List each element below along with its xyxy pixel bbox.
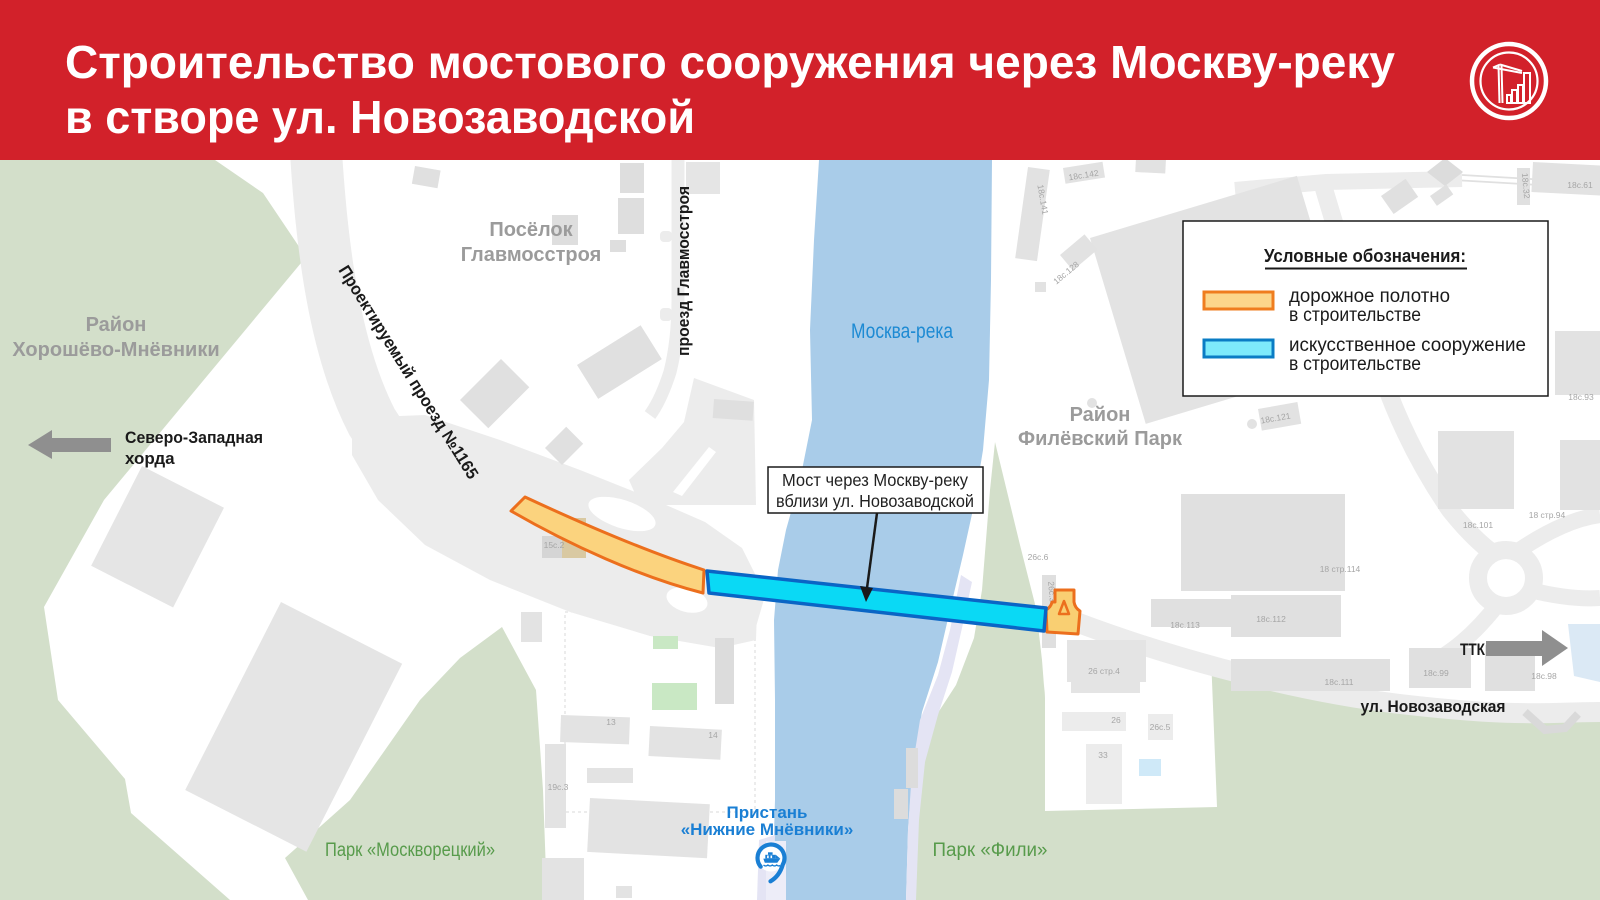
svg-text:Северо-Западная: Северо-Западная (125, 428, 263, 447)
svg-text:в строительстве: в строительстве (1289, 354, 1421, 375)
svg-text:19с.3: 19с.3 (548, 782, 569, 792)
svg-text:Строительство мостового сооруж: Строительство мостового сооружения через… (65, 36, 1395, 88)
svg-text:Хорошёво-Мнёвники: Хорошёво-Мнёвники (12, 339, 219, 361)
svg-text:Район: Район (86, 314, 147, 336)
svg-text:18с.61: 18с.61 (1567, 180, 1593, 190)
svg-text:Москва-река: Москва-река (851, 320, 953, 343)
svg-text:18 стр.114: 18 стр.114 (1320, 564, 1361, 574)
svg-text:Филёвский Парк: Филёвский Парк (1018, 428, 1183, 450)
svg-text:Парк «Фили»: Парк «Фили» (933, 840, 1048, 861)
svg-text:18с.99: 18с.99 (1423, 668, 1449, 678)
svg-text:проезд Главмосстроя: проезд Главмосстроя (674, 186, 693, 356)
svg-text:в створе ул. Новозаводской: в створе ул. Новозаводской (65, 91, 695, 143)
svg-text:18с.113: 18с.113 (1170, 620, 1200, 630)
svg-text:Главмосстроя: Главмосстроя (461, 244, 602, 266)
svg-text:Условные обозначения:: Условные обозначения: (1264, 246, 1466, 266)
svg-text:26с.5: 26с.5 (1150, 722, 1171, 732)
svg-text:18 стр.94: 18 стр.94 (1529, 510, 1566, 520)
svg-text:26с.6: 26с.6 (1028, 552, 1049, 562)
svg-text:18с.98: 18с.98 (1531, 671, 1557, 681)
svg-text:дорожное полотно: дорожное полотно (1289, 286, 1450, 307)
svg-text:26: 26 (1111, 715, 1121, 725)
svg-text:Район: Район (1070, 404, 1131, 426)
svg-text:13: 13 (606, 717, 616, 727)
svg-text:14: 14 (708, 730, 718, 740)
svg-text:ТТК: ТТК (1460, 640, 1485, 659)
svg-text:Посёлок: Посёлок (489, 219, 573, 241)
svg-text:18с.112: 18с.112 (1256, 614, 1286, 624)
svg-text:33: 33 (1098, 750, 1108, 760)
svg-text:18с.101: 18с.101 (1463, 520, 1494, 530)
svg-text:26 стр.4: 26 стр.4 (1088, 666, 1120, 676)
svg-text:вблизи ул. Новозаводской: вблизи ул. Новозаводской (776, 491, 974, 511)
svg-text:ул. Новозаводская: ул. Новозаводская (1361, 697, 1506, 716)
svg-text:Мост через Москву-реку: Мост через Москву-реку (782, 470, 968, 490)
svg-text:хорда: хорда (125, 449, 175, 468)
svg-text:15с.2: 15с.2 (544, 540, 565, 550)
svg-text:в строительстве: в строительстве (1289, 305, 1421, 326)
svg-text:«Нижние Мнёвники»: «Нижние Мнёвники» (681, 820, 854, 839)
svg-text:Парк «Москворецкий»: Парк «Москворецкий» (325, 840, 495, 861)
svg-text:18с.93: 18с.93 (1568, 392, 1594, 402)
svg-text:18с.111: 18с.111 (1325, 677, 1354, 687)
svg-text:искусственное сооружение: искусственное сооружение (1289, 335, 1526, 356)
